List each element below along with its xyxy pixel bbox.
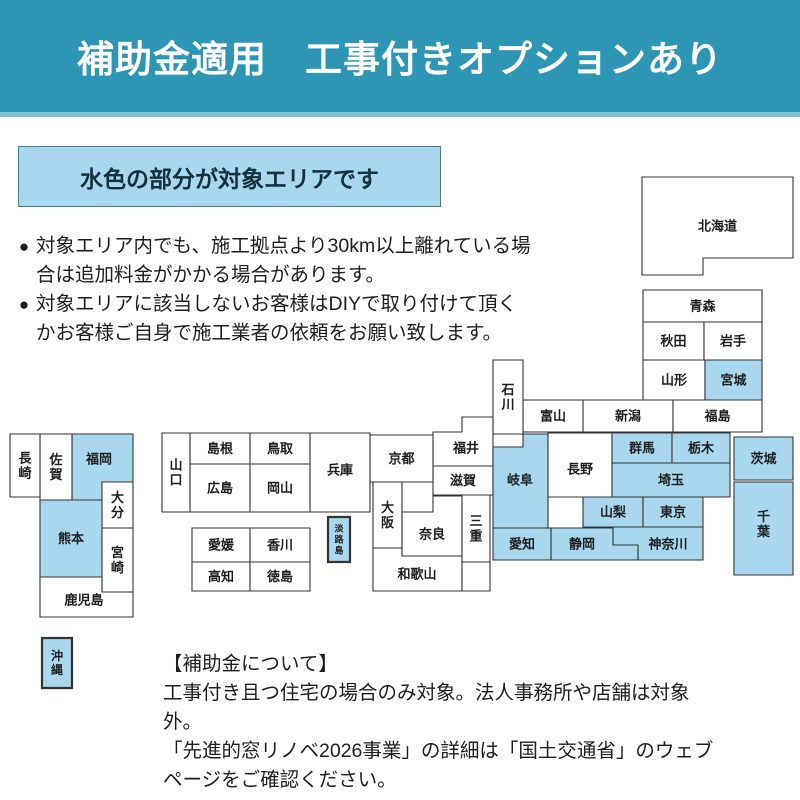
- area-label-hokkaido: 北海道: [698, 219, 737, 234]
- area-label-miyazaki: 宮崎: [111, 545, 124, 575]
- area-label-hiroshima: 広島: [207, 481, 233, 496]
- area-label-tottori: 鳥取: [267, 441, 294, 456]
- area-label-mie: 三重: [469, 514, 482, 544]
- area-label-fukuoka: 福岡: [85, 452, 112, 467]
- area-label-akita: 秋田: [660, 334, 686, 349]
- area-label-saitama: 埼玉: [658, 473, 684, 488]
- subsidy-note-body: 工事付き且つ住宅の場合のみ対象。法人事務所や店舗は対象外。 「先進的窓リノベ20…: [163, 679, 723, 795]
- area-label-iwate: 岩手: [719, 334, 746, 349]
- area-mie-south: [462, 562, 490, 591]
- area-label-nara: 奈良: [418, 527, 445, 542]
- area-label-kumamoto: 熊本: [58, 531, 84, 546]
- area-label-nagasaki: 長崎: [18, 451, 32, 481]
- area-label-shiga: 滋賀: [450, 473, 476, 488]
- area-label-kagawa: 香川: [266, 538, 293, 553]
- area-label-shimane: 島根: [207, 441, 234, 456]
- area-label-ibaraki: 茨城: [750, 451, 776, 466]
- area-label-ishikawa: 石川: [500, 382, 514, 412]
- subsidy-note: 【補助金について】 工事付き且つ住宅の場合のみ対象。法人事務所や店舗は対象外。 …: [163, 650, 723, 795]
- area-label-wakayama: 和歌山: [397, 567, 436, 582]
- subsidy-note-heading: 【補助金について】: [163, 650, 723, 679]
- area-label-yamaguchi: 山口: [169, 458, 182, 488]
- area-label-nagano: 長野: [567, 462, 593, 477]
- area-label-fukushima: 福島: [703, 409, 730, 424]
- area-label-niigata: 新潟: [615, 409, 641, 424]
- area-label-miyagi: 宮城: [720, 373, 746, 388]
- area-label-chiba: 千葉: [756, 509, 771, 539]
- area-label-okinawa: 沖縄: [51, 648, 63, 677]
- area-label-kyoto: 京都: [388, 451, 414, 466]
- area-label-aichi: 愛知: [509, 537, 535, 552]
- area-label-awajishima: 淡路島: [334, 524, 344, 556]
- area-label-hyogo: 兵庫: [327, 463, 353, 478]
- area-label-kanagawa: 神奈川: [648, 537, 687, 552]
- area-label-osaka: 大阪: [381, 500, 395, 530]
- area-label-saga: 佐賀: [48, 452, 62, 482]
- area-label-yamagata: 山形: [661, 373, 687, 388]
- area-label-aomori: 青森: [689, 299, 716, 314]
- area-label-kagoshima: 鹿児島: [64, 593, 103, 608]
- area-label-tokushima: 徳島: [266, 569, 293, 584]
- area-label-shizuoka: 静岡: [569, 537, 595, 552]
- area-label-gunma: 群馬: [629, 441, 655, 456]
- area-label-kochi: 高知: [208, 569, 234, 584]
- area-label-oita: 大分: [111, 490, 124, 520]
- area-label-fukui: 福井: [452, 441, 479, 456]
- area-label-okayama: 岡山: [267, 481, 293, 496]
- area-label-ehime: 愛媛: [208, 538, 235, 553]
- area-label-yamanashi: 山梨: [600, 505, 627, 520]
- area-label-tochigi: 栃木: [688, 441, 715, 456]
- area-label-tokyo: 東京: [660, 505, 686, 520]
- area-label-gifu: 岐阜: [507, 473, 533, 488]
- area-label-toyama: 富山: [540, 409, 566, 424]
